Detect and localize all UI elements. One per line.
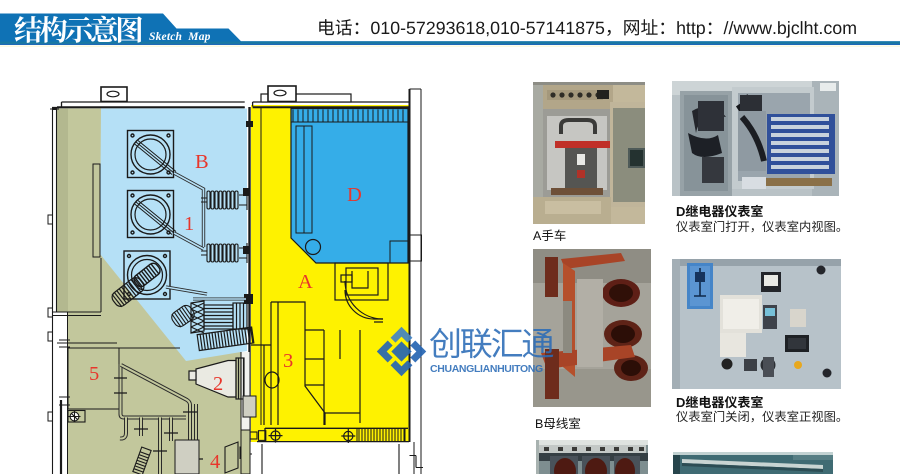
svg-text:1: 1 — [184, 213, 194, 235]
svg-text:D: D — [347, 184, 362, 206]
svg-text:A: A — [298, 271, 313, 293]
svg-text:3: 3 — [283, 350, 293, 372]
svg-text:CHUANGLIANHUITONG: CHUANGLIANHUITONG — [430, 363, 543, 375]
svg-text:4: 4 — [210, 451, 220, 473]
svg-text:2: 2 — [213, 373, 223, 395]
svg-text:Sketch Map: Sketch Map — [149, 31, 211, 43]
svg-text:B: B — [195, 151, 209, 173]
svg-text:5: 5 — [89, 363, 99, 385]
